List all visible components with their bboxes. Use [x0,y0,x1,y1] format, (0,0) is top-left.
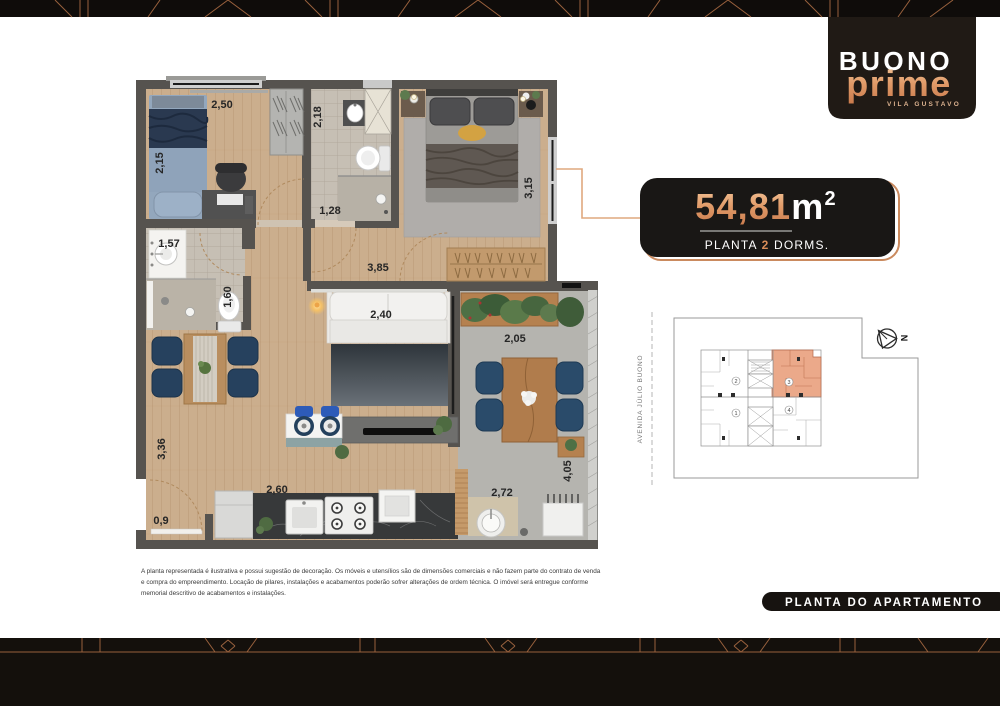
svg-text:memorial descritivo de acabame: memorial descritivo de acabamentos e ins… [141,590,286,597]
svg-text:3,85: 3,85 [367,262,388,274]
svg-text:2: 2 [734,379,737,385]
svg-text:54,81m2: 54,81m2 [695,186,837,227]
svg-text:2,50: 2,50 [211,99,232,111]
svg-text:PLANTA DO APARTAMENTO: PLANTA DO APARTAMENTO [785,597,983,609]
svg-text:prime: prime [846,63,952,104]
svg-text:4,05: 4,05 [562,460,574,481]
svg-text:3: 3 [787,380,790,386]
svg-text:AVENIDA JÚLIO BUONO: AVENIDA JÚLIO BUONO [635,355,644,444]
svg-text:1: 1 [734,411,737,417]
svg-text:e compra do empreendimento. Lo: e compra do empreendimento. Locação de p… [141,579,589,586]
svg-text:A planta representada é ilustr: A planta representada é ilustrativa e po… [141,568,601,575]
svg-text:1,60: 1,60 [222,286,234,307]
svg-text:4: 4 [787,408,790,414]
svg-text:PLANTA 2 DORMS.: PLANTA 2 DORMS. [705,238,829,252]
svg-text:N: N [899,335,909,342]
svg-text:2,60: 2,60 [266,484,287,496]
svg-text:2,40: 2,40 [370,309,391,321]
svg-text:3,15: 3,15 [523,177,535,198]
svg-text:0,9: 0,9 [153,515,168,527]
svg-text:2,05: 2,05 [504,333,525,345]
svg-text:2,15: 2,15 [154,152,166,173]
svg-text:3,36: 3,36 [156,438,168,459]
svg-text:VILA GUSTAVO: VILA GUSTAVO [887,101,961,108]
svg-text:2,18: 2,18 [312,106,324,127]
svg-text:1,28: 1,28 [319,205,340,217]
svg-text:2,72: 2,72 [491,487,512,499]
svg-text:1,57: 1,57 [158,238,179,250]
